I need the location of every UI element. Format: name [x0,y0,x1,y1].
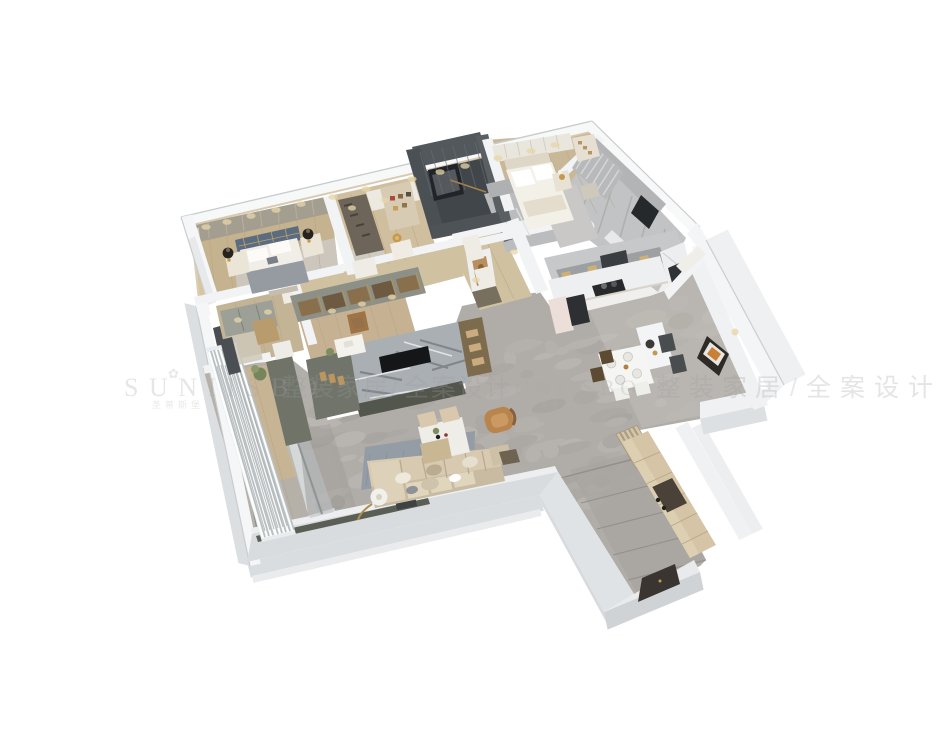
svg-text:全: 全 [404,374,429,402]
svg-text:✿: ✿ [168,366,179,381]
svg-text:家: 家 [336,374,361,402]
svg-text:整: 整 [656,374,681,402]
svg-text:居: 居 [363,374,388,402]
svg-text:整: 整 [282,374,307,402]
svg-text:设: 设 [874,374,899,402]
svg-text:圣蒂斯堡: 圣蒂斯堡 [152,399,204,410]
svg-text:计: 计 [485,374,510,402]
svg-text:全: 全 [806,374,831,402]
svg-text:设: 设 [458,374,483,402]
svg-text:计: 计 [908,374,933,402]
svg-text:/: / [391,374,398,402]
svg-text:家: 家 [722,374,747,402]
svg-text:装: 装 [689,374,714,402]
svg-text:装: 装 [309,374,334,402]
svg-text:/: / [790,374,797,402]
svg-text:居: 居 [755,374,780,402]
svg-text:案: 案 [431,374,456,402]
svg-text:SUNIISBO: SUNIISBO [496,375,641,400]
svg-text:✿: ✿ [552,365,561,377]
svg-text:案: 案 [840,374,865,402]
svg-text:圣蒂斯堡: 圣蒂斯堡 [540,398,584,408]
